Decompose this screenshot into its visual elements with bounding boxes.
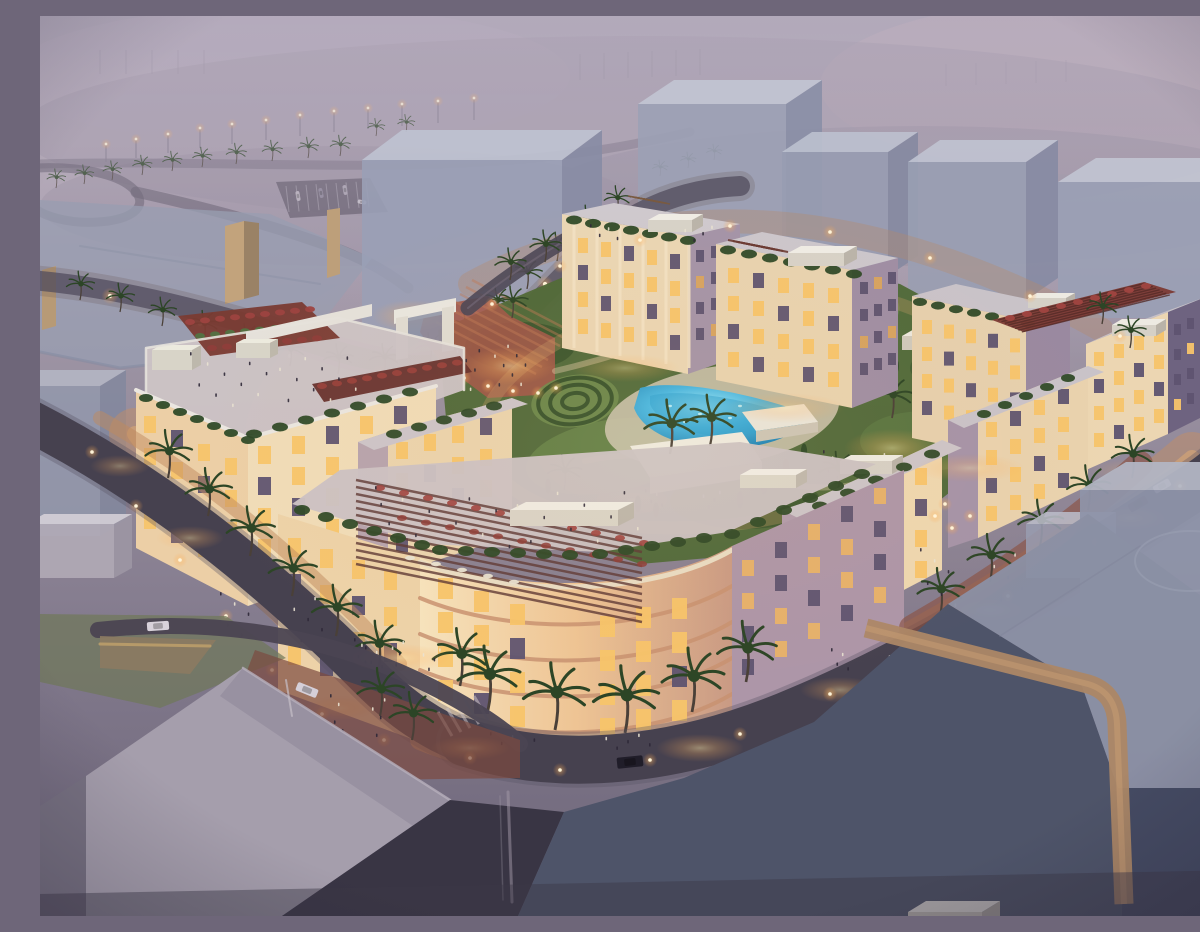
atmosphere: [40, 16, 1200, 916]
scene-svg: [40, 16, 1200, 916]
architectural-render: Aerial dusk architectural rendering of a…: [40, 16, 1200, 916]
